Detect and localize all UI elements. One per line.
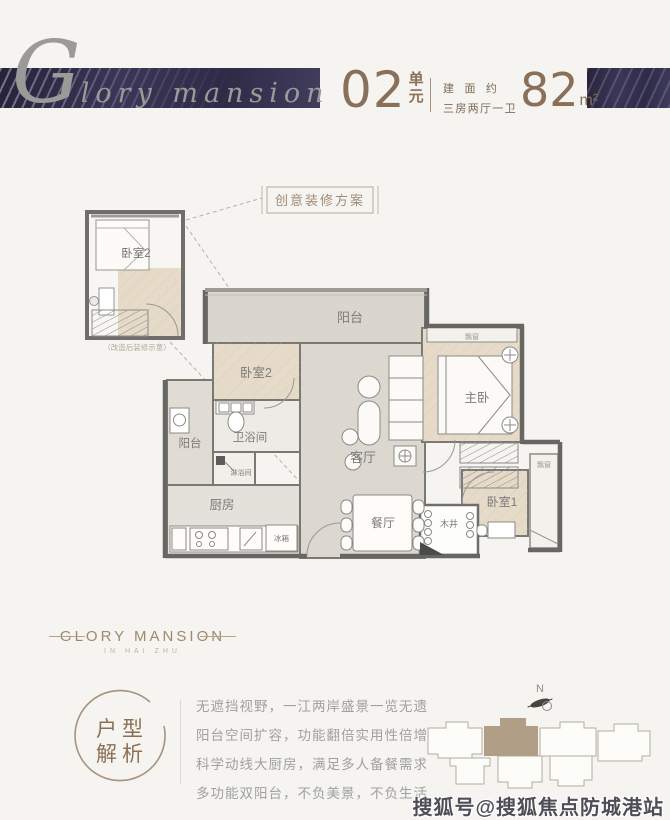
watermark: 搜狐号@搜狐焦点防城港站 — [412, 791, 664, 820]
area-note-bottom: 三房两厅一卫 — [443, 100, 517, 116]
wardrobe-hatch-top — [460, 443, 518, 463]
inset-room-label: 卧室2 — [121, 246, 150, 260]
label-living: 客厅 — [350, 450, 376, 465]
label-balcony-left: 阳台 — [179, 436, 202, 450]
label-well: 木井 — [440, 518, 458, 529]
analysis-stamp: 户型 解析 — [72, 688, 176, 792]
scheme-label-box: 创意装修方案 — [262, 186, 378, 214]
inset-caption: （改造后装修示意） — [103, 342, 171, 352]
script-logo: Glory mansion — [12, 38, 322, 129]
label-bedroom2: 卧室2 — [240, 365, 272, 380]
description-line: 多功能双阳台，不负美景，不负生活 — [196, 779, 428, 808]
compass-label: N — [536, 683, 544, 695]
unit-heading: 02 单元 — [340, 70, 424, 110]
compass-icon — [527, 696, 554, 711]
unit-suffix: 单元 — [409, 71, 425, 105]
area-heading: 82 m² — [520, 70, 598, 110]
scheme-label: 创意装修方案 — [275, 193, 365, 208]
footer-divider — [180, 700, 181, 784]
description-line: 科学动线大厨房，满足多人备餐需求 — [196, 750, 428, 779]
label-bedroom1: 卧室1 — [487, 494, 518, 509]
brand-block: GLORY MANSION IN HAI ZHU — [50, 628, 235, 655]
brand-rule-right — [200, 636, 236, 637]
description-line: 无遮挡视野，一江两岸盛景一览无遗 — [196, 692, 428, 721]
stamp-line1: 户型 — [96, 717, 148, 741]
label-balcony-top: 阳台 — [337, 310, 363, 325]
area-note-top: 建面约 — [443, 80, 517, 96]
label-master: 主卧 — [464, 391, 489, 405]
label-kitchen: 厨房 — [209, 497, 234, 512]
label-bay-bedroom1: 飘窗 — [537, 460, 551, 469]
header-banner-right — [587, 68, 670, 108]
label-bay-master: 飘窗 — [465, 332, 479, 341]
site-buildings — [428, 722, 650, 788]
description-paragraph: 无遮挡视野，一江两岸盛景一览无遗 阳台空间扩容，功能翻倍实用性倍增 科学动线大厨… — [196, 692, 428, 808]
site-key-plan: N — [420, 672, 660, 797]
label-shower: 淋浴间 — [231, 468, 252, 477]
floor-plan: 创意装修方案 卧室2 （改造后装修示意） — [0, 140, 670, 576]
label-fridge: 冰箱 — [274, 533, 289, 543]
inset-plan: 卧室2 （改造后装修示意） — [87, 212, 183, 352]
unit-number: 02 — [340, 70, 406, 110]
description-line: 阳台空间扩容，功能翻倍实用性倍增 — [196, 721, 428, 750]
area-unit: m² — [580, 92, 599, 110]
washer-icon — [170, 408, 189, 433]
area-value: 82 — [520, 70, 579, 110]
header-divider — [430, 78, 431, 112]
stamp-line2: 解析 — [96, 742, 148, 766]
site-highlight-unit — [484, 718, 538, 756]
brand-subtitle: IN HAI ZHU — [50, 648, 235, 655]
label-bathroom: 卫浴间 — [233, 431, 268, 444]
area-note: 建面约 三房两厅一卫 — [443, 80, 517, 116]
brand-rule-left — [49, 636, 85, 637]
label-dining: 餐厅 — [371, 515, 395, 530]
